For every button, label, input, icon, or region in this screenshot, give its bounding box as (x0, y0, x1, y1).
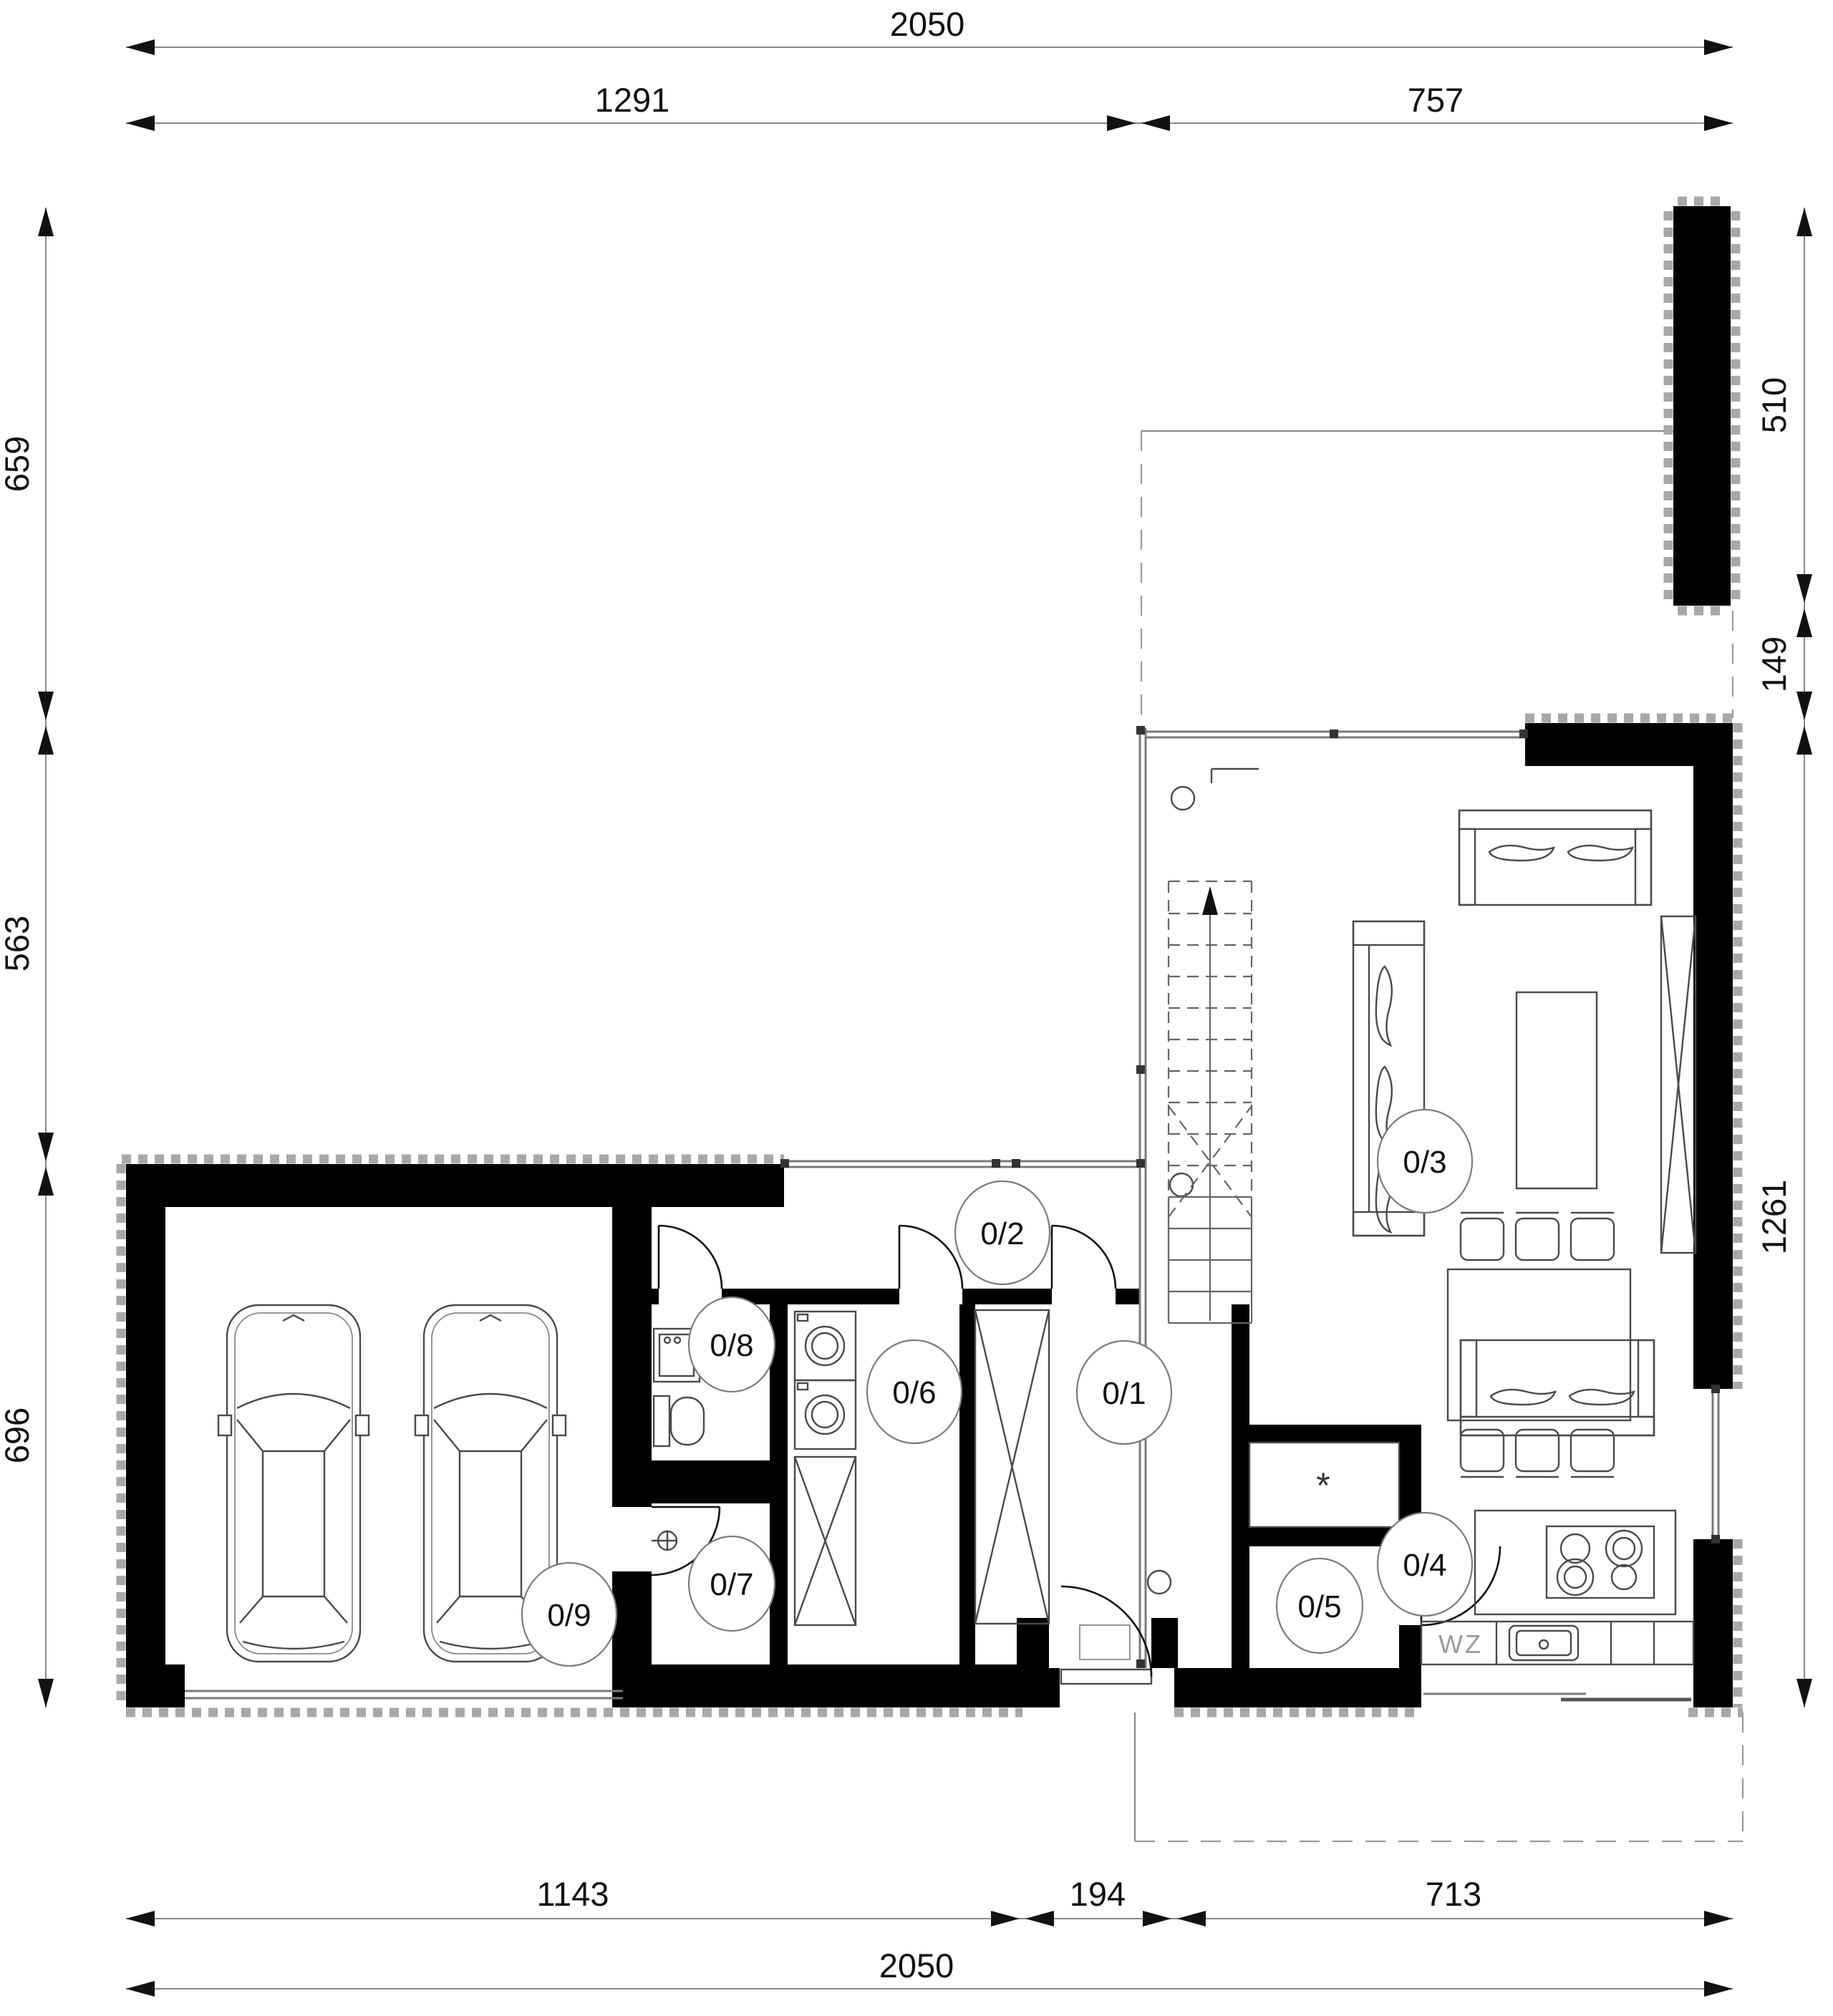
dim-top-right: 757 (1408, 81, 1464, 119)
dim-right-mid: 149 (1755, 636, 1793, 692)
column-marker (1171, 787, 1194, 810)
svg-text:0/6: 0/6 (892, 1375, 936, 1410)
sofa-top (1459, 810, 1651, 905)
room-label-09: 0/9 (522, 1563, 616, 1666)
kitchen-island (1475, 1511, 1675, 1614)
floor-plan-page: WZ (0, 0, 1833, 2016)
hall-wardrobe (975, 1310, 1049, 1624)
room-label-05: 0/5 (1277, 1559, 1363, 1653)
dryer (795, 1380, 856, 1449)
dim-left-bottom: 696 (0, 1407, 36, 1463)
svg-text:0/3: 0/3 (1403, 1145, 1446, 1180)
dim-bottom-left: 1143 (536, 1875, 609, 1913)
door-arc-01 (1052, 1226, 1116, 1289)
dim-bottom-overall: 2050 (879, 1947, 954, 1984)
floor-plan-drawing: WZ (0, 0, 1833, 2016)
room-label-06: 0/6 (867, 1340, 962, 1443)
washer (795, 1312, 856, 1380)
tv-unit (1661, 916, 1696, 1253)
svg-text:0/4: 0/4 (1403, 1548, 1446, 1583)
door-arc-08 (659, 1226, 722, 1289)
room-label-01: 0/1 (1077, 1341, 1171, 1444)
column-marker (1148, 1571, 1171, 1594)
room-label-03: 0/3 (1378, 1110, 1472, 1213)
room-label-04: 0/4 (1378, 1513, 1472, 1616)
stairs (1169, 881, 1252, 1323)
room-label-07: 0/7 (689, 1536, 775, 1631)
entrance-door (1061, 1669, 1151, 1684)
stair-direction-arrow (1202, 886, 1218, 915)
car-icon (218, 1305, 369, 1662)
dim-bottom-right: 713 (1426, 1875, 1481, 1913)
water-meter-label: WZ (1438, 1629, 1483, 1659)
doormat (1080, 1625, 1130, 1659)
technical-closet: * (1249, 1443, 1399, 1527)
closet-star-label: * (1316, 1465, 1330, 1506)
column-marker (1170, 1173, 1193, 1196)
dim-right-bottom: 1261 (1755, 1180, 1793, 1255)
coffee-table (1517, 992, 1597, 1188)
svg-text:0/7: 0/7 (710, 1567, 753, 1602)
dim-right-top: 510 (1755, 377, 1793, 433)
door-arc-06 (899, 1226, 962, 1289)
toilet (654, 1396, 669, 1446)
svg-text:0/5: 0/5 (1297, 1589, 1341, 1624)
dim-top-left: 1291 (595, 81, 670, 119)
laundry-appliances (795, 1312, 856, 1625)
svg-text:0/8: 0/8 (710, 1328, 753, 1363)
room-label-02: 0/2 (955, 1181, 1050, 1284)
freestanding-wall (1673, 206, 1731, 606)
svg-text:0/1: 0/1 (1102, 1376, 1146, 1411)
dim-left-mid: 563 (0, 916, 36, 971)
svg-text:0/9: 0/9 (547, 1598, 591, 1633)
dim-bottom-mid: 194 (1070, 1875, 1126, 1913)
dim-top-overall: 2050 (890, 5, 965, 43)
room-label-08: 0/8 (689, 1297, 775, 1392)
svg-text:0/2: 0/2 (980, 1216, 1024, 1251)
insulation-hatching (121, 201, 1743, 1712)
dim-left-top: 659 (0, 436, 36, 492)
dining-set (1448, 1213, 1630, 1477)
kitchen-counter: WZ (1421, 1622, 1693, 1664)
